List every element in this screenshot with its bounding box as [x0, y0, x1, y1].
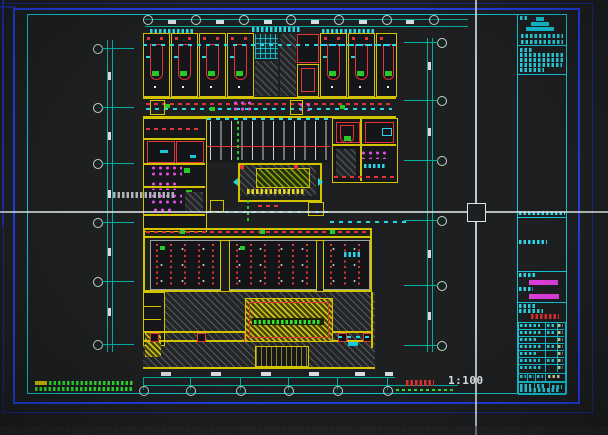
pickbox-cursor[interactable] [467, 203, 486, 222]
green-fixture [180, 230, 185, 234]
table-cell-text [558, 359, 563, 362]
red-fixture [337, 37, 340, 40]
divider [518, 302, 566, 303]
dimension-text [264, 20, 272, 24]
wall-line [143, 138, 205, 140]
cyan-fixture [351, 56, 355, 58]
hatched-block [336, 149, 356, 177]
table-cell-text [547, 331, 556, 334]
grid-bubble-icon [93, 44, 103, 54]
cyan-dashed-line [146, 108, 392, 110]
green-fixture [184, 168, 190, 173]
cyan-dashed-line [207, 118, 330, 120]
small-room [150, 100, 165, 115]
table-cell-text [520, 352, 536, 355]
table-cell-text [520, 359, 540, 362]
table-gridline [518, 343, 564, 344]
rooftop-garden-block [245, 298, 333, 342]
red-dot-column [198, 244, 200, 286]
table-cell-text [537, 384, 546, 388]
green-fixture [165, 104, 170, 108]
column-marker [197, 333, 206, 342]
magenta-symbol-cluster [232, 100, 254, 112]
white-dot [359, 86, 361, 88]
red-dot-column [278, 244, 280, 286]
table-gridline [518, 357, 564, 358]
table-cell-text [558, 345, 563, 348]
red-dot-column [156, 244, 158, 286]
unit-bay [171, 33, 198, 97]
table-gridline [545, 373, 546, 381]
green-dashed-line [237, 121, 239, 160]
wall-line [143, 228, 372, 230]
table-cell-text [558, 352, 563, 355]
red-dot-column [236, 244, 238, 286]
cyan-fixture [323, 56, 327, 58]
shaft-room [297, 64, 319, 97]
red-dot-column [250, 244, 252, 286]
unit-bay [143, 33, 170, 97]
crosshair-horizontal-line[interactable] [0, 211, 608, 213]
scale-label: 1:100 [448, 374, 484, 387]
cad-viewport[interactable]: 1:100 [0, 0, 608, 435]
general-note-text [49, 381, 133, 385]
red-fixture [175, 37, 178, 40]
magenta-symbol-cluster [150, 165, 182, 178]
notes-label-text [520, 48, 532, 52]
dimension-line [145, 26, 468, 27]
dimension-text [108, 72, 111, 80]
wall-line [371, 292, 373, 348]
notes-text [520, 63, 562, 67]
table-cell-text [520, 384, 531, 388]
green-fixture [357, 71, 364, 76]
logo-icon [526, 27, 554, 31]
white-dot [182, 86, 184, 88]
red-dot-column [170, 244, 172, 286]
dimension-extension [404, 100, 438, 101]
grid-bubble-icon [437, 216, 447, 226]
dimension-extension [102, 281, 134, 282]
divider [518, 271, 566, 272]
red-dot-column [344, 244, 346, 286]
field-label-text [519, 273, 535, 277]
dimension-text [108, 190, 111, 198]
small-room [308, 202, 324, 216]
cyan-fixture [230, 56, 234, 58]
dimension-extension [404, 160, 438, 161]
dimension-text [108, 132, 111, 140]
white-dot [387, 86, 389, 88]
cyan-fixture [160, 150, 168, 153]
grid-bubble-icon [429, 15, 439, 25]
table-cell-text [547, 345, 556, 348]
red-dashed-line [146, 128, 202, 130]
green-fixture [329, 71, 336, 76]
dimension-extension [404, 42, 438, 43]
notes-text [520, 53, 564, 57]
green-fixture [236, 71, 243, 76]
dimension-extension [404, 345, 438, 346]
grid-bubble-icon [334, 15, 344, 25]
red-fixture [380, 37, 383, 40]
white-dot [331, 86, 333, 88]
highlight-magenta-row [529, 280, 558, 285]
dimension-text [108, 248, 111, 256]
dimension-text [428, 62, 431, 70]
desk-texture [0, 426, 608, 435]
unit-bay [376, 33, 397, 97]
grid-bubble-icon [437, 281, 447, 291]
wall-line [143, 236, 372, 238]
table-gridline [518, 329, 564, 330]
grid-bubble-icon [236, 386, 246, 396]
green-fixture [240, 246, 245, 250]
hatched-block [185, 192, 203, 212]
red-dot-column [330, 244, 332, 286]
dimension-line [427, 38, 428, 352]
logo-icon [531, 22, 549, 26]
column-marker [338, 333, 347, 342]
white-dot [210, 86, 212, 88]
grid-bubble-icon [139, 386, 149, 396]
table-cell-text [558, 366, 563, 369]
cyan-fixture [382, 128, 392, 136]
grid-bubble-icon [333, 386, 343, 396]
red-fixture [147, 37, 150, 40]
table-gridline [518, 336, 564, 337]
grid-bubble-icon [437, 96, 447, 106]
grid-bubble-icon [93, 277, 103, 287]
table-cell-text [558, 338, 563, 341]
dimension-text [309, 372, 319, 376]
cyan-arrow-icon [318, 178, 323, 186]
divider [518, 74, 566, 75]
wall-line [143, 367, 375, 369]
wall-line [144, 319, 161, 320]
red-fixture [324, 37, 327, 40]
red-inner-outline [301, 68, 315, 92]
notes-text [520, 58, 564, 62]
unit-bay [348, 33, 375, 97]
table-gridline [518, 364, 564, 365]
grid-bubble-icon [93, 340, 103, 350]
dimension-text [161, 372, 171, 376]
room-outline [176, 141, 204, 163]
red-dashed-line [334, 176, 394, 178]
table-cell-text [520, 331, 542, 334]
cyan-dashed-line [320, 44, 396, 46]
grid-bubble-icon [437, 38, 447, 48]
cyan-dashed-line [338, 336, 370, 338]
green-fixture [344, 136, 351, 141]
grid-bubble-icon [437, 156, 447, 166]
wall-pier [316, 240, 324, 292]
red-fixture [244, 37, 247, 40]
table-gridline [527, 373, 528, 381]
dimension-text [211, 372, 221, 376]
table-cell-text [520, 375, 526, 378]
green-fixture [160, 246, 165, 250]
magenta-symbol-cluster [360, 150, 386, 159]
table-cell-text [547, 324, 556, 327]
red-dot-column [184, 244, 186, 286]
green-fixture [330, 230, 335, 234]
red-dot-column [358, 244, 360, 286]
wall-line [332, 144, 396, 146]
dimension-text [261, 372, 271, 376]
grid-bubble-icon [437, 341, 447, 351]
dimension-line [432, 38, 433, 352]
gray-note-text [113, 192, 175, 198]
dimension-text [311, 20, 319, 24]
red-dot-column [306, 244, 308, 286]
table-gridline [535, 373, 536, 381]
dimension-extension [102, 344, 134, 345]
dimension-extension [404, 285, 438, 286]
divider [518, 45, 566, 46]
dimension-extension [102, 163, 134, 164]
dimension-text [428, 128, 431, 136]
grid-bubble-icon [286, 15, 296, 25]
grid-bubble-icon [191, 15, 201, 25]
grid-bubble-icon [93, 218, 103, 228]
red-corner-mark [294, 165, 298, 169]
field-label-text [519, 309, 543, 313]
white-dot [154, 86, 156, 88]
red-stamp-text [531, 314, 559, 319]
dimension-text [108, 308, 111, 316]
highlight-magenta-row [529, 294, 559, 299]
notes-text [520, 68, 544, 72]
table-cell-text [537, 375, 543, 378]
dimension-text [428, 312, 431, 320]
white-dot [238, 86, 240, 88]
table-cell-text [520, 324, 540, 327]
column-marker [150, 333, 159, 342]
unit-bay [199, 33, 226, 97]
parking-stall-lines [210, 121, 328, 160]
unit-bay [320, 33, 347, 97]
courtyard [238, 163, 322, 202]
green-fixture [210, 107, 215, 111]
company-name-text [521, 40, 563, 44]
divider [518, 217, 566, 218]
elevator-grid-block [255, 34, 278, 59]
magenta-symbol-cluster [150, 181, 176, 190]
red-fixture [352, 37, 355, 40]
dimension-extension [102, 107, 134, 108]
room-label-text [364, 164, 386, 168]
field-label-text [519, 287, 533, 291]
cyan-fixture [348, 342, 358, 346]
green-dashed-underline [396, 389, 454, 391]
red-dashed-line [146, 103, 392, 105]
red-fixture [216, 37, 219, 40]
table-cell-text [558, 331, 563, 334]
green-landscape-block [256, 168, 310, 188]
grid-bubble-icon [284, 386, 294, 396]
green-fixture [180, 71, 187, 76]
dimension-text [168, 20, 176, 24]
table-cell-text [520, 345, 542, 348]
green-fixture [340, 105, 345, 109]
cyan-fixture [146, 56, 150, 58]
red-corner-mark [240, 165, 244, 169]
cyan-arrow-icon [233, 178, 238, 186]
dimension-text [355, 372, 365, 376]
stair-block [255, 346, 309, 367]
table-gridline [518, 350, 564, 351]
table-cell-text [520, 366, 542, 369]
grid-bubble-icon [143, 15, 153, 25]
green-caption-text [254, 320, 320, 324]
title-block [517, 14, 566, 393]
wall-line [143, 97, 396, 99]
small-room [290, 100, 303, 115]
dimension-text [406, 20, 414, 24]
grid-bubble-icon [186, 386, 196, 396]
dimension-text [428, 250, 431, 258]
cyan-fixture [190, 155, 196, 158]
wall-line [144, 306, 161, 307]
wall-pier [220, 240, 230, 292]
dimension-text [359, 20, 367, 24]
dimension-text [216, 20, 224, 24]
dimension-extension [102, 48, 134, 49]
cyan-dashed-line [330, 221, 410, 223]
green-fixture [385, 71, 392, 76]
green-fixture [208, 71, 215, 76]
grid-bubble-icon [93, 103, 103, 113]
dimension-extension [102, 222, 134, 223]
sheet-number-text [548, 375, 561, 378]
dimension-text [385, 372, 393, 376]
logo-icon [536, 17, 544, 21]
red-dot-column [292, 244, 294, 286]
title-block-corner-text [520, 16, 528, 20]
green-fixture [152, 71, 159, 76]
grid-bubble-icon [382, 15, 392, 25]
hatched-core-wall [255, 61, 278, 96]
red-dashed-line [258, 205, 278, 207]
table-cell-text [529, 375, 534, 378]
company-name-text [521, 34, 563, 38]
table-cell-text [558, 324, 563, 327]
general-note-text [35, 387, 132, 391]
red-stamp-note-text [406, 380, 434, 386]
red-dot-column [264, 244, 266, 286]
field-label-text [519, 240, 547, 244]
unit-bay [227, 33, 254, 97]
note-number-text [35, 381, 47, 385]
yellow-caption-text [247, 189, 305, 194]
stair-room [297, 34, 319, 63]
table-cell-text [520, 338, 538, 341]
field-label-text [519, 304, 537, 308]
plan-title-text [252, 27, 300, 32]
wall-line [370, 228, 372, 292]
green-fixture [260, 230, 265, 234]
red-line [207, 146, 330, 147]
table-cell-text [547, 359, 556, 362]
cyan-fixture [202, 56, 206, 58]
wall-line [143, 228, 145, 292]
grid-bubble-icon [239, 15, 249, 25]
red-dot-column [212, 244, 214, 286]
grid-bubble-icon [93, 159, 103, 169]
red-fixture [365, 37, 368, 40]
red-fixture [231, 37, 234, 40]
table-cell-text [520, 388, 560, 392]
cyan-fixture [174, 56, 178, 58]
dimension-line [143, 377, 395, 378]
grid-bubble-icon [383, 386, 393, 396]
red-fixture [188, 37, 191, 40]
red-fixture [160, 37, 163, 40]
room-label-text [344, 252, 360, 257]
red-fixture [203, 37, 206, 40]
